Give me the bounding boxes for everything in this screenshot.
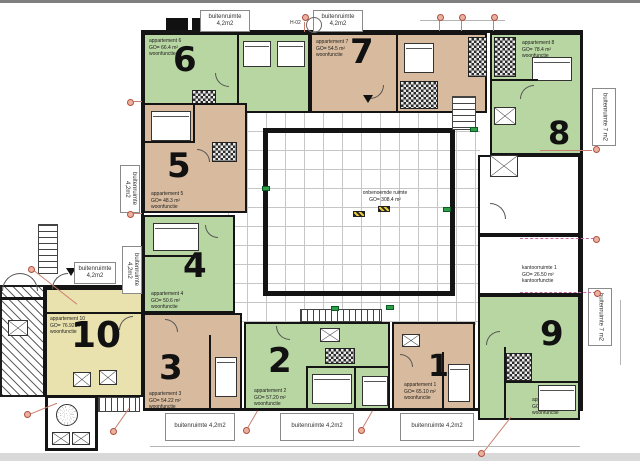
- interior-wall: [442, 352, 444, 410]
- survey-dot-icon: [28, 266, 35, 273]
- apartment-5-room: appartement 5 GO= 48.3 m² woonfunctie 5: [143, 103, 247, 213]
- survey-dot-icon: [593, 236, 600, 243]
- survey-dot-icon: [302, 14, 309, 21]
- balcony-label: buitenruimte 4,2m2: [122, 246, 142, 294]
- balcony-label: buitenruimte 7 m2: [588, 288, 612, 346]
- bed: [153, 223, 199, 251]
- apartment-7-info: appartement 7 GO= 54.5 m² woonfunctie: [316, 39, 348, 59]
- leader-line: [247, 411, 258, 429]
- survey-dot-icon: [437, 14, 444, 21]
- survey-dot-icon: [358, 427, 365, 434]
- apartment-2-function: woonfunctie: [254, 401, 286, 408]
- leader-line: [134, 213, 142, 214]
- apartment-10-number: 10: [71, 318, 121, 354]
- dashed-leader-line: [520, 238, 594, 239]
- central-hall-area: GO= 308.4 m²: [338, 197, 432, 204]
- kitchen-unit: [320, 328, 340, 342]
- bathroom-tiles: [506, 353, 532, 381]
- stairwell: [452, 96, 476, 130]
- interior-wall: [47, 312, 141, 314]
- apartment-3-number: 3: [159, 351, 183, 385]
- apartment-1-info: appartement 1 GO= 65.10 m² woonfunctie: [404, 382, 436, 402]
- apartment-1-function: woonfunctie: [404, 395, 436, 402]
- door-arc: [165, 319, 178, 332]
- balcony-label: buitenruimte 4,2m2: [200, 10, 250, 32]
- balcony-block: [166, 18, 188, 30]
- apartment-2-name: appartement 2: [254, 388, 286, 395]
- interior-wall: [237, 35, 239, 111]
- furniture-box: [73, 372, 91, 387]
- leader-line: [362, 411, 373, 429]
- hazard-marker-icon: [353, 211, 365, 217]
- apartment-8-number: 8: [548, 117, 570, 149]
- door-arc: [276, 326, 290, 340]
- apartment-2-info: appartement 2 GO= 57.20 m² woonfunctie: [254, 388, 286, 408]
- section-marker-icon: [363, 95, 373, 103]
- leader-line: [540, 150, 592, 151]
- exterior-stair: [38, 224, 58, 274]
- bed: [362, 376, 388, 406]
- apartment-2-number: 2: [268, 344, 292, 378]
- door-arc: [205, 225, 218, 238]
- apartment-7-function: woonfunctie: [316, 52, 348, 59]
- bathroom-tiles: [400, 81, 438, 109]
- interior-wall: [492, 79, 538, 81]
- bottom-edge-strip: [0, 453, 640, 461]
- bathroom-tiles: [212, 142, 237, 162]
- survey-dot-icon: [127, 211, 134, 218]
- door-arc: [520, 85, 534, 99]
- apartment-6-room: appartement 6 GO= 66.4 m² woonfunctie 6: [143, 33, 310, 113]
- bed: [243, 41, 271, 67]
- apartment-3-function: woonfunctie: [149, 404, 181, 411]
- door-arc: [400, 354, 413, 367]
- dashed-leader-line: [520, 292, 596, 293]
- interior-wall: [306, 366, 390, 368]
- survey-dot-icon: [459, 14, 466, 21]
- survey-dot-icon: [243, 427, 250, 434]
- office-function: kantoorfunctie: [522, 278, 557, 285]
- exit-sign-icon: [331, 306, 339, 311]
- hatched-existing-structure: [0, 285, 45, 397]
- balcony-label: buitenruimte 4,2m2: [280, 413, 354, 441]
- leader-line: [483, 417, 511, 453]
- apartment-1-number: 1: [428, 352, 449, 382]
- dimension-line: [150, 446, 580, 447]
- h02-label: H-02: [290, 20, 301, 26]
- central-hall-label: onbenoemde ruimte GO= 308.4 m²: [338, 190, 432, 203]
- apartment-10-room: appartement 10 GO= 76.92 m² woonfunctie …: [45, 288, 143, 397]
- survey-dot-icon: [491, 14, 498, 21]
- office-room: kantoorruimte 1 GO= 26.50 m² kantoorfunc…: [478, 235, 580, 295]
- furniture-box: [99, 370, 117, 385]
- bathroom-tiles: [494, 37, 516, 77]
- apartment-4-function: woonfunctie: [151, 304, 183, 311]
- balcony-label: buitenruimte 4,2m2: [120, 165, 140, 213]
- door-arc: [215, 73, 229, 87]
- interior-wall: [145, 255, 201, 257]
- bathroom-tiles: [468, 37, 487, 77]
- interior-wall: [506, 381, 580, 383]
- bed: [532, 57, 572, 81]
- apartment-4-info: appartement 4 GO= 50.6 m² woonfunctie: [151, 291, 183, 311]
- apartment-4-room: appartement 4 GO= 50.6 m² woonfunctie 4: [143, 215, 235, 313]
- apartment-9-room: appartement 9 GO= 66.80 m² woonfunctie 9: [478, 295, 580, 420]
- balcony-label: buitenruimte 4,2m2: [74, 262, 116, 284]
- apartment-3-info: appartement 3 GO= 54.22 m² woonfunctie: [149, 391, 181, 411]
- survey-dot-icon: [110, 428, 117, 435]
- apartment-5-info: appartement 5 GO= 48.3 m² woonfunctie: [151, 191, 183, 211]
- door-arc: [490, 203, 506, 219]
- hazard-marker-icon: [378, 206, 390, 212]
- survey-dot-icon: [127, 99, 134, 106]
- apartment-8-room: appartement 8 GO= 78.4 m² woonfunctie 8: [490, 33, 582, 155]
- apartment-3-name: appartement 3: [149, 391, 181, 398]
- bed: [151, 111, 191, 141]
- stairwell: [98, 397, 140, 412]
- door-arc: [20, 273, 38, 291]
- leader-line: [134, 101, 142, 102]
- interior-wall: [306, 368, 308, 410]
- apartment-4-name: appartement 4: [151, 291, 183, 298]
- exit-sign-icon: [386, 305, 394, 310]
- bathroom-tiles: [325, 348, 355, 364]
- storage-box: [8, 320, 28, 336]
- kitchen-unit: [494, 107, 516, 125]
- kitchen-unit: [52, 432, 70, 445]
- interior-wall: [354, 368, 356, 410]
- survey-dot-icon: [478, 450, 485, 457]
- office-name: kantoorruimte 1: [522, 265, 557, 272]
- bed: [215, 357, 237, 397]
- survey-dot-icon: [24, 411, 31, 418]
- apartment-3-room: appartement 3 GO= 54.22 m² woonfunctie 3: [143, 313, 242, 410]
- floorplan-drawing: onbenoemde ruimte GO= 308.4 m² apparteme…: [0, 0, 640, 461]
- exit-sign-icon: [443, 207, 451, 212]
- elevator-shaft: [490, 155, 518, 177]
- top-edge-strip: [0, 0, 640, 3]
- apartment-7-name: appartement 7: [316, 39, 348, 46]
- spiral-stair: [56, 404, 78, 426]
- interior-wall: [193, 105, 195, 141]
- door-arc: [197, 149, 210, 162]
- stairwell: [300, 309, 382, 322]
- apartment-5-number: 5: [167, 149, 191, 183]
- apartment-5-name: appartement 5: [151, 191, 183, 198]
- door-arc: [2, 273, 20, 291]
- balcony-label: buitenruimte 4,2m2: [400, 413, 474, 441]
- apartment-9-number: 9: [540, 317, 564, 351]
- interior-wall: [209, 335, 211, 408]
- kitchen-unit: [402, 334, 420, 347]
- interior-wall: [396, 35, 398, 111]
- bed: [448, 364, 470, 402]
- apartment-1-room: appartement 1 GO= 65.10 m² woonfunctie 1: [392, 322, 475, 410]
- leader-line: [304, 22, 305, 32]
- survey-dot-icon: [594, 290, 601, 297]
- bed: [312, 374, 352, 404]
- survey-dot-icon: [593, 146, 600, 153]
- exit-sign-icon: [262, 186, 270, 191]
- apartment-8-name: appartement 8: [522, 40, 554, 47]
- balcony-label: buitenruimte 7 m2: [592, 88, 616, 146]
- apartment-6-number: 6: [173, 43, 197, 77]
- exit-sign-icon: [470, 127, 478, 132]
- kitchen-unit: [72, 432, 90, 445]
- balcony-label: buitenruimte 4,2m2: [165, 413, 235, 441]
- bed: [538, 385, 576, 411]
- apartment-5-function: woonfunctie: [151, 204, 183, 211]
- door-arc: [486, 331, 500, 345]
- interior-wall: [145, 141, 195, 143]
- bed: [277, 41, 305, 67]
- apartment-7-number: 7: [350, 35, 374, 69]
- bed: [404, 43, 434, 73]
- dimension-line: [620, 300, 621, 365]
- office-info: kantoorruimte 1 GO= 26.50 m² kantoorfunc…: [522, 265, 557, 285]
- apartment-2-room: appartement 2 GO= 57.20 m² woonfunctie 2: [244, 322, 390, 410]
- interior-wall: [504, 347, 506, 420]
